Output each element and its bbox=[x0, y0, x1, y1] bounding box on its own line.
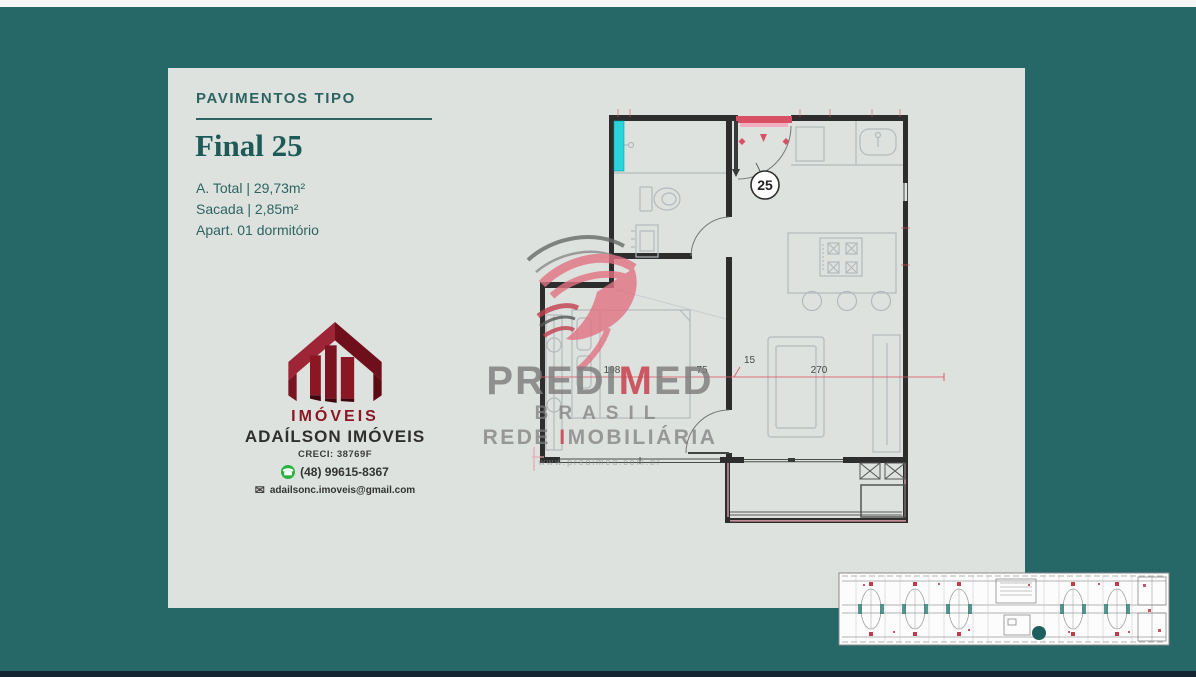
unit-25-marker: 25 bbox=[751, 171, 779, 199]
phone-row: ☎ (48) 99615-8367 bbox=[225, 465, 445, 479]
email-row: ✉ adailsonc.imoveis@gmail.com bbox=[225, 483, 445, 497]
building-overview-plan bbox=[838, 569, 1171, 649]
agency-block: IMÓVEIS ADAÍLSON IMÓVEIS CRECI: 38769F ☎… bbox=[225, 318, 445, 497]
unit-number-label: 25 bbox=[757, 177, 773, 193]
agency-email: adailsonc.imoveis@gmail.com bbox=[270, 485, 415, 496]
detail-apartment-type: Apart. 01 dormitório bbox=[196, 220, 319, 241]
agency-phone: (48) 99615-8367 bbox=[300, 465, 389, 479]
unit-title: Final 25 bbox=[195, 128, 303, 164]
bottom-strip bbox=[0, 671, 1196, 677]
content-panel: PAVIMENTOS TIPO Final 25 A. Total | 29,7… bbox=[168, 68, 1025, 608]
apartment-details: A. Total | 29,73m² Sacada | 2,85m² Apart… bbox=[196, 178, 319, 241]
agency-name: ADAÍLSON IMÓVEIS bbox=[225, 427, 445, 447]
category-title: PAVIMENTOS TIPO bbox=[196, 90, 356, 107]
kitchen-fixtures bbox=[788, 121, 903, 311]
utility-boxes bbox=[860, 463, 905, 517]
dimension-lines bbox=[538, 109, 944, 381]
bathroom-fixtures bbox=[614, 143, 726, 258]
detail-balcony-area: Sacada | 2,85m² bbox=[196, 199, 319, 220]
whatsapp-icon: ☎ bbox=[281, 465, 295, 479]
dim-wall: 15 bbox=[744, 355, 756, 366]
unit-location-marker bbox=[1032, 626, 1046, 640]
email-icon: ✉ bbox=[255, 483, 265, 497]
agency-creci: CRECI: 38769F bbox=[225, 449, 445, 460]
plan-walls bbox=[540, 115, 908, 523]
top-strip bbox=[0, 0, 1196, 7]
balcony-railing bbox=[730, 512, 902, 515]
dim-bedroom-width: 198 bbox=[604, 365, 621, 376]
door-arcs bbox=[686, 217, 729, 453]
flyer-canvas: PAVIMENTOS TIPO Final 25 A. Total | 29,7… bbox=[0, 0, 1196, 677]
entrance-door bbox=[732, 116, 792, 179]
floorplan-drawing: 25 bbox=[530, 105, 950, 535]
dimension-labels: 198 75 15 270 bbox=[604, 355, 828, 376]
dim-hall: 75 bbox=[696, 365, 708, 376]
shower-box bbox=[614, 121, 624, 171]
title-underline bbox=[196, 118, 432, 120]
logo-caption: IMÓVEIS bbox=[225, 408, 445, 426]
house-logo-icon bbox=[285, 318, 385, 406]
living-furniture bbox=[768, 335, 900, 452]
sliding-door-handle bbox=[788, 458, 795, 462]
detail-total-area: A. Total | 29,73m² bbox=[196, 178, 319, 199]
dim-living-width: 270 bbox=[811, 365, 828, 376]
